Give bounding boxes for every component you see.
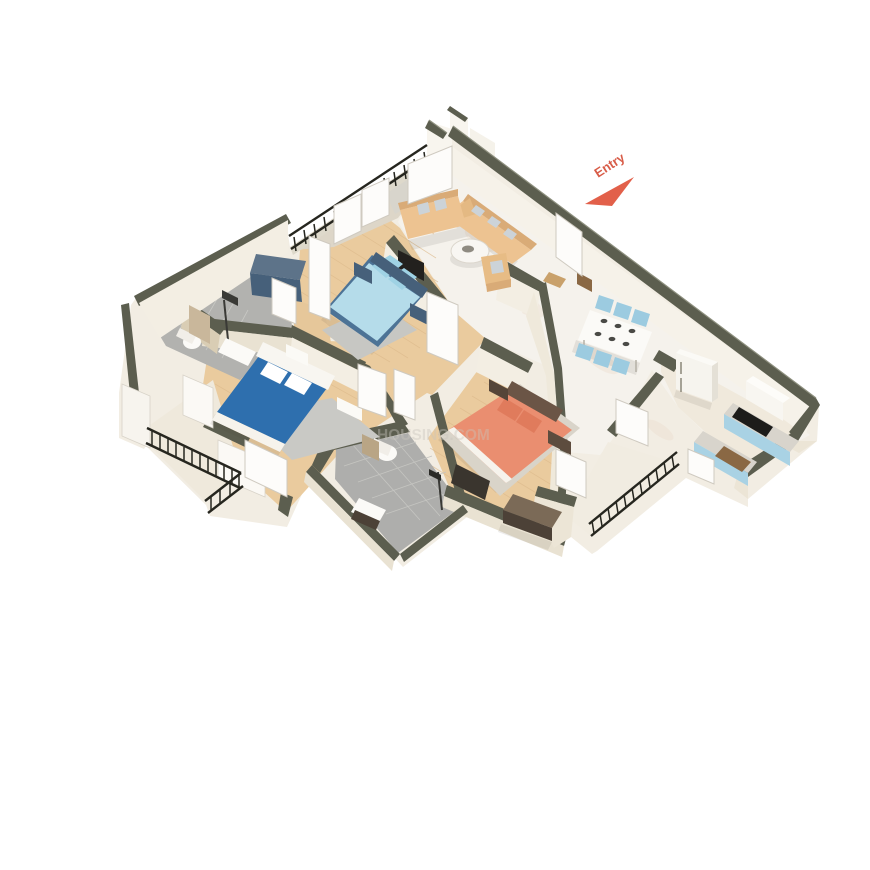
svg-text:HOUSING.COM: HOUSING.COM <box>377 427 490 444</box>
svg-text:Entry: Entry <box>591 149 628 180</box>
